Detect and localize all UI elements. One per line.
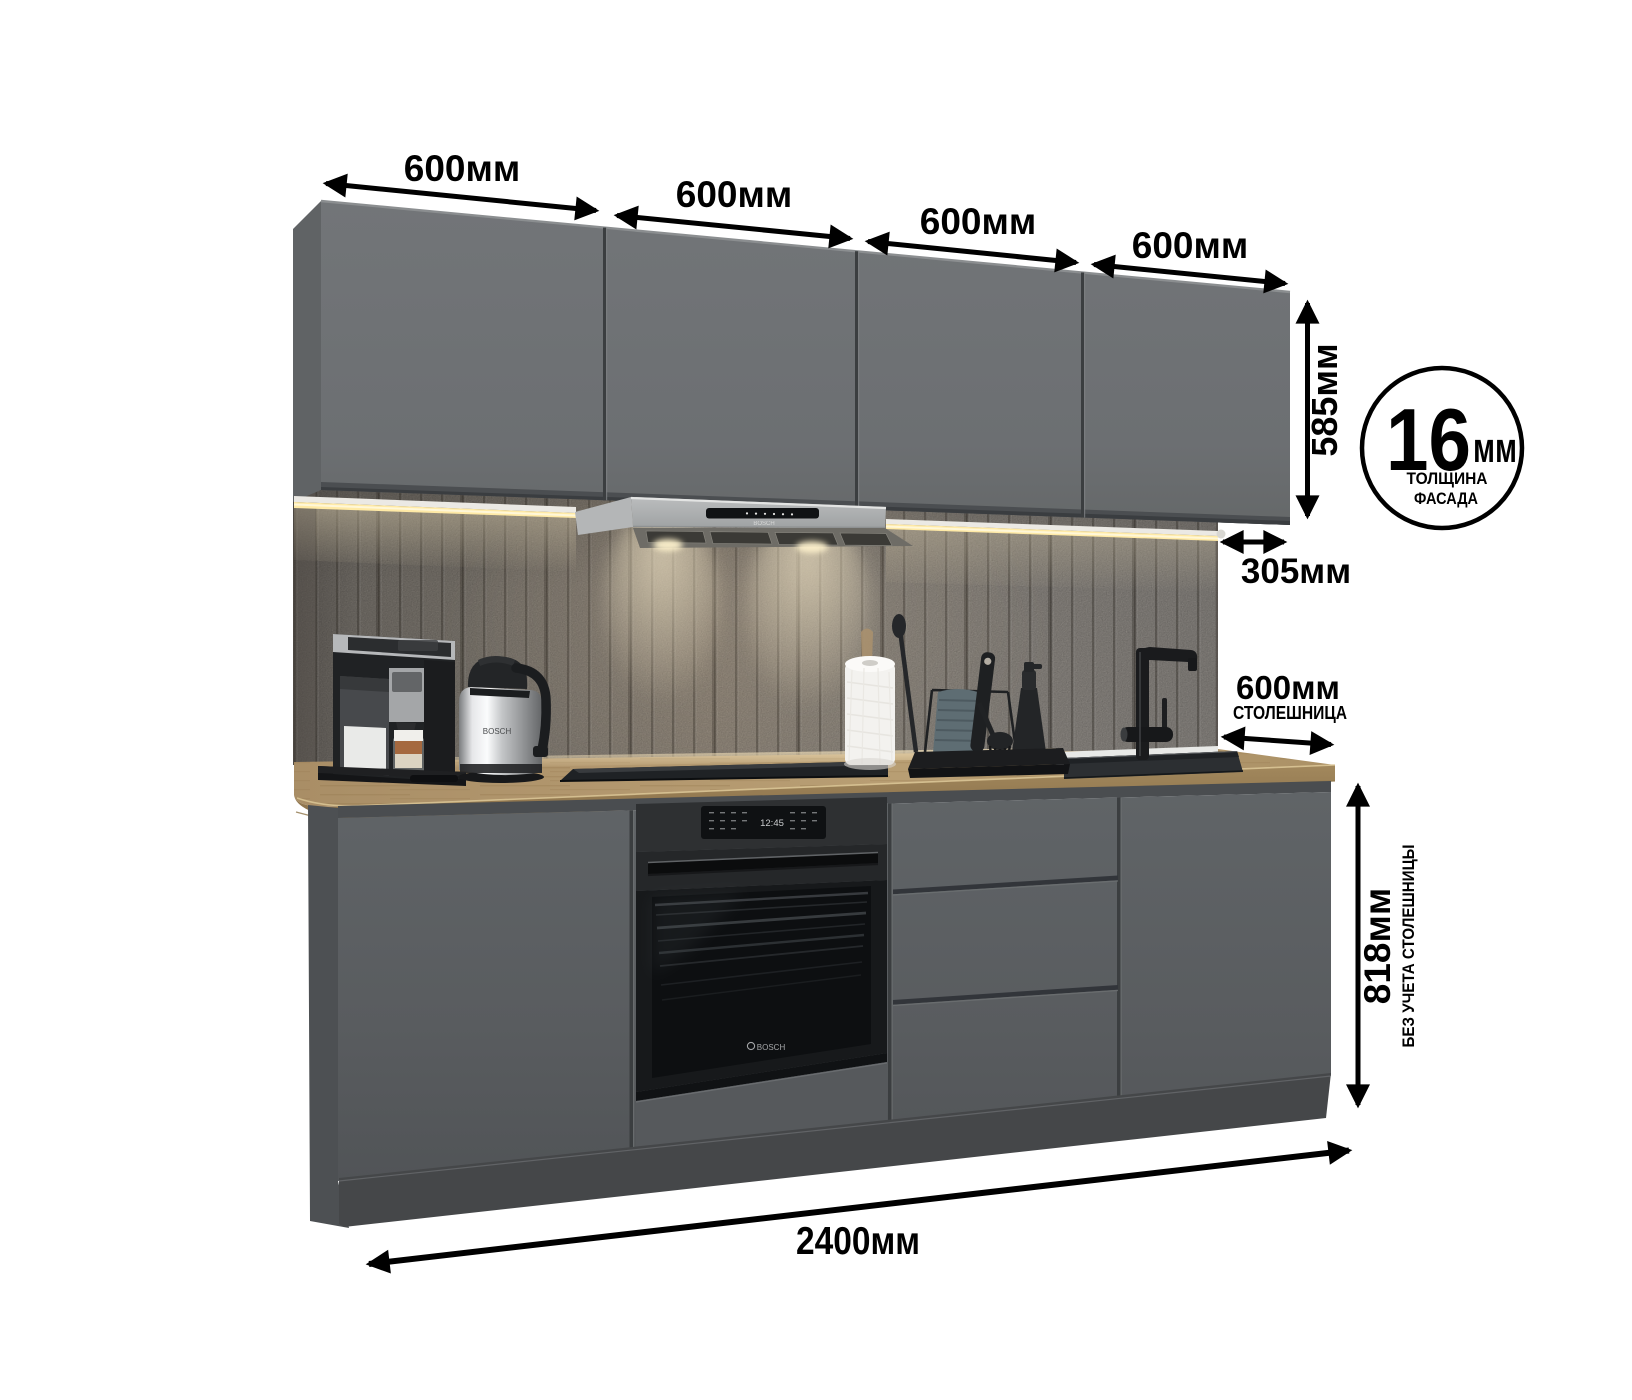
svg-text:305мм: 305мм — [1241, 552, 1351, 591]
svg-text:BOSCH: BOSCH — [483, 727, 512, 736]
svg-text:БЕЗ УЧЕТА СТОЛЕШНИЦЫ: БЕЗ УЧЕТА СТОЛЕШНИЦЫ — [1399, 845, 1418, 1048]
svg-text:600мм: 600мм — [1132, 225, 1248, 266]
svg-text:12:45: 12:45 — [760, 818, 784, 829]
svg-text:600мм: 600мм — [920, 201, 1036, 242]
svg-text:ФАСАДА: ФАСАДА — [1414, 489, 1478, 508]
svg-text:600мм: 600мм — [1236, 669, 1340, 706]
svg-text:BOSCH: BOSCH — [753, 521, 774, 527]
svg-text:818мм: 818мм — [1357, 888, 1398, 1004]
svg-text:600мм: 600мм — [676, 174, 792, 215]
svg-text:СТОЛЕШНИЦА: СТОЛЕШНИЦА — [1233, 703, 1347, 723]
svg-text:ТОЛЩИНА: ТОЛЩИНА — [1407, 469, 1488, 488]
svg-text:BOSCH: BOSCH — [757, 1043, 786, 1052]
svg-text:2400мм: 2400мм — [796, 1220, 920, 1263]
svg-text:600мм: 600мм — [404, 148, 520, 189]
svg-text:мм: мм — [1473, 424, 1517, 471]
svg-text:585мм: 585мм — [1304, 343, 1345, 456]
